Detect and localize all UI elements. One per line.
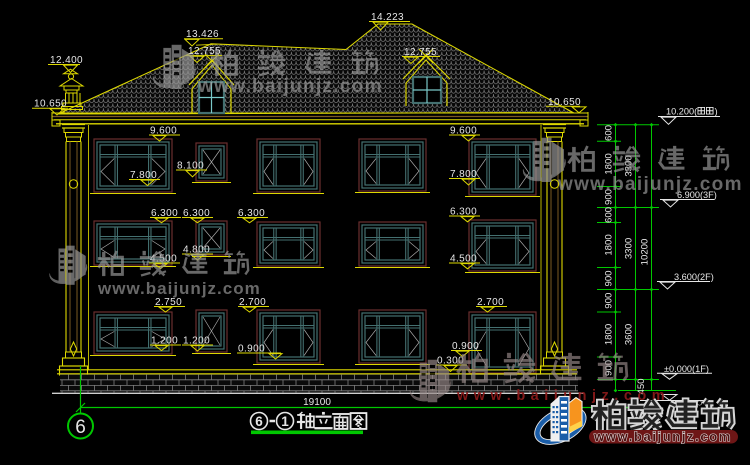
svg-text:6: 6 bbox=[255, 414, 263, 429]
svg-text:): ) bbox=[715, 107, 718, 118]
svg-text:www.baijunjz.com: www.baijunjz.com bbox=[593, 429, 732, 444]
svg-text:6: 6 bbox=[75, 417, 86, 438]
svg-text:1800: 1800 bbox=[604, 153, 615, 174]
svg-text:3300: 3300 bbox=[624, 238, 635, 259]
svg-text:600: 600 bbox=[604, 125, 615, 141]
svg-text:900: 900 bbox=[604, 270, 615, 286]
svg-text:900: 900 bbox=[604, 293, 615, 309]
svg-text:3.600(2F): 3.600(2F) bbox=[674, 272, 714, 282]
svg-text:www.baijunjz.com: www.baijunjz.com bbox=[197, 76, 383, 97]
svg-text:19100: 19100 bbox=[303, 397, 331, 408]
svg-text:1800: 1800 bbox=[604, 234, 615, 255]
svg-text:3600: 3600 bbox=[624, 324, 635, 345]
svg-text:1800: 1800 bbox=[604, 324, 615, 345]
svg-text:www.baijunjz.com: www.baijunjz.com bbox=[557, 174, 743, 195]
svg-text:10200: 10200 bbox=[640, 239, 651, 266]
svg-text:10.200(: 10.200( bbox=[666, 107, 697, 117]
svg-text:600: 600 bbox=[604, 207, 615, 223]
svg-text:www.baijunjz.com: www.baijunjz.com bbox=[97, 279, 261, 298]
svg-text:1: 1 bbox=[281, 414, 289, 429]
svg-text:±0.000(1F): ±0.000(1F) bbox=[664, 364, 709, 374]
